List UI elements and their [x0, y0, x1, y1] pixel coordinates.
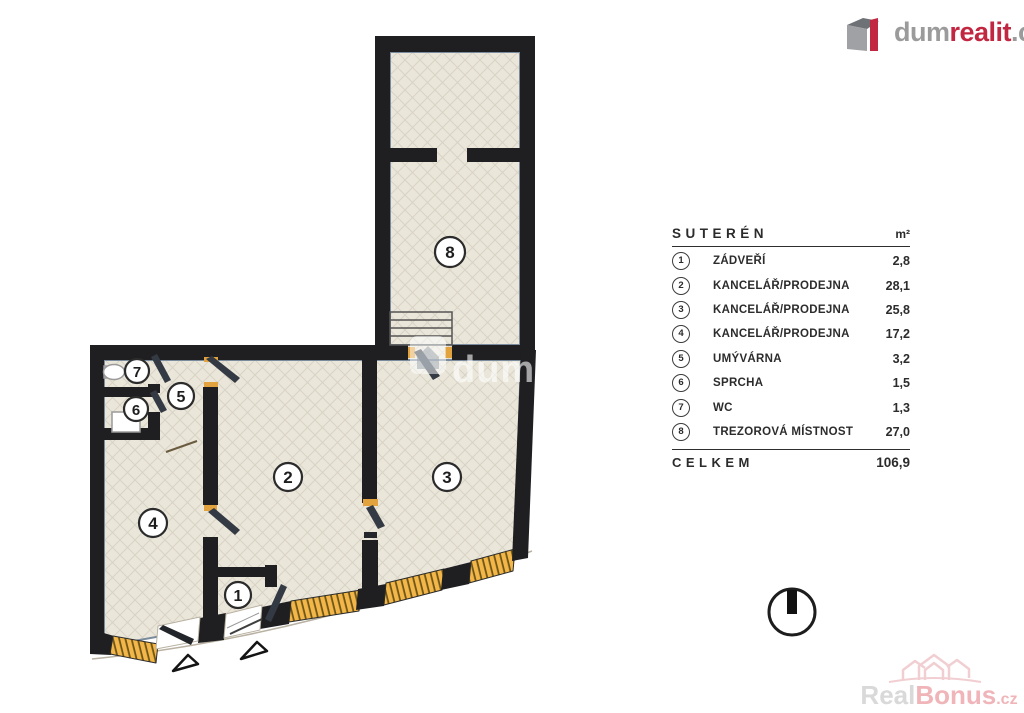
room-area: 27,0: [886, 425, 910, 439]
legend-row: 3 KANCELÁŘ/PRODEJNA 25,8: [672, 298, 910, 322]
brand-logo-text: dumrealit.cz: [894, 12, 1024, 52]
legend-unit: m²: [895, 227, 910, 241]
legend-row: 5 UMÝVÁRNA 3,2: [672, 347, 910, 371]
room-number-badge: 5: [672, 350, 690, 368]
room-label-5: 5: [168, 383, 194, 409]
brand-accent: realit: [950, 17, 1012, 47]
houses-icon: [859, 650, 1019, 684]
brand-logo: dumrealit.cz: [843, 11, 1024, 53]
north-compass-icon: [769, 589, 815, 635]
room-area: 3,2: [893, 352, 910, 366]
footer-accent: Bonus: [915, 680, 996, 710]
room-number-badge: 3: [672, 301, 690, 319]
entrance-arrow-icon: [241, 642, 267, 659]
svg-text:3: 3: [442, 468, 451, 487]
toilet: [104, 365, 125, 380]
svg-text:5: 5: [177, 389, 186, 406]
room-number-badge: 7: [672, 399, 690, 417]
room-number-badge: 2: [672, 277, 690, 295]
room-area: 1,3: [893, 401, 910, 415]
room-area: 25,8: [886, 303, 910, 317]
legend-row: 8 TREZOROVÁ MÍSTNOST 27,0: [672, 420, 910, 444]
entrance-arrow-icon: [173, 655, 198, 671]
room-label-1: 1: [225, 582, 251, 608]
room-name: WC: [713, 402, 893, 414]
footer-watermark: RealBonus.cz: [856, 650, 1022, 711]
brand-prefix: dum: [894, 17, 950, 47]
brand-suffix: .cz: [1011, 17, 1024, 47]
room-name: TREZOROVÁ MÍSTNOST: [713, 426, 886, 438]
legend-row: 6 SPRCHA 1,5: [672, 371, 910, 395]
plan-watermark-text: dumreal: [452, 349, 607, 391]
footer-suffix: .cz: [996, 691, 1017, 708]
legend-divider: [672, 449, 910, 450]
legend-title: SUTERÉN: [672, 226, 768, 241]
room-label-8: 8: [435, 237, 465, 267]
svg-text:7: 7: [133, 364, 141, 381]
brand-logo-icon: [843, 11, 887, 53]
room-number-badge: 4: [672, 325, 690, 343]
room-number-badge: 6: [672, 374, 690, 392]
room-area: 1,5: [893, 376, 910, 390]
svg-text:8: 8: [445, 243, 454, 262]
room-name: KANCELÁŘ/PRODEJNA: [713, 328, 886, 340]
room-name: ZÁDVEŘÍ: [713, 255, 893, 267]
legend-row: 2 KANCELÁŘ/PRODEJNA 28,1: [672, 273, 910, 297]
room-8-floor: [390, 52, 520, 345]
legend-divider: [672, 246, 910, 247]
room-name: KANCELÁŘ/PRODEJNA: [713, 304, 886, 316]
room-legend: SUTERÉN m² 1 ZÁDVEŘÍ 2,8 2 KANCELÁŘ/PROD…: [672, 226, 910, 470]
legend-row: 1 ZÁDVEŘÍ 2,8: [672, 249, 910, 273]
svg-text:6: 6: [132, 402, 140, 419]
total-value: 106,9: [876, 455, 910, 470]
legend-row: 7 WC 1,3: [672, 395, 910, 419]
room-name: KANCELÁŘ/PRODEJNA: [713, 280, 886, 292]
room-area: 17,2: [886, 327, 910, 341]
room-area: 28,1: [886, 279, 910, 293]
room-number-badge: 1: [672, 252, 690, 270]
svg-text:1: 1: [234, 588, 243, 605]
svg-text:2: 2: [283, 468, 292, 487]
room-label-4: 4: [139, 509, 167, 537]
legend-header: SUTERÉN m²: [672, 226, 910, 241]
total-label: CELKEM: [672, 455, 754, 470]
room-label-6: 6: [124, 397, 148, 421]
room-name: UMÝVÁRNA: [713, 353, 893, 365]
room-label-3: 3: [433, 463, 461, 491]
footer-watermark-text: RealBonus.cz: [856, 684, 1022, 711]
footer-prefix: Real: [860, 680, 915, 710]
legend-row: 4 KANCELÁŘ/PRODEJNA 17,2: [672, 322, 910, 346]
svg-text:4: 4: [148, 514, 158, 533]
room-label-2: 2: [274, 463, 302, 491]
room-label-7: 7: [125, 359, 149, 383]
page: { "brand": { "prefix": "dum", "accent": …: [0, 0, 1024, 713]
room-number-badge: 8: [672, 423, 690, 441]
room-area: 2,8: [893, 254, 910, 268]
legend-total-row: CELKEM 106,9: [672, 455, 910, 470]
room-name: SPRCHA: [713, 377, 893, 389]
